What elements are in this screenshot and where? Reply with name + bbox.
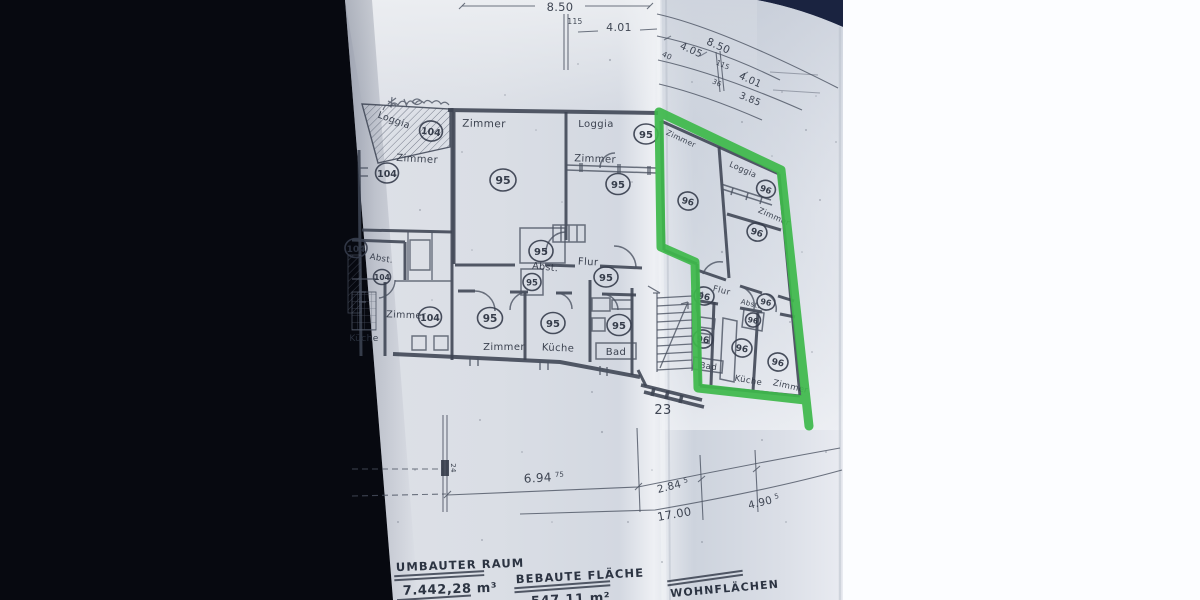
white-sheet-right <box>843 0 1200 600</box>
number-95-zimmer-right: 95 <box>611 180 625 191</box>
photographed-floor-plan: 8.50 115 4.01 40 4.05 8.50 115 36 4.01 3… <box>0 0 1200 600</box>
paper-fold-face <box>660 0 843 430</box>
number-95-kueche: 95 <box>546 319 560 330</box>
number-95-bad: 95 <box>612 321 626 332</box>
number-104-zimmer-top: 104 <box>377 169 397 180</box>
room-label-bad-95: Bad <box>606 347 627 358</box>
dim-694-bottom: 6.94 <box>523 470 552 485</box>
dim-401-top: 4.01 <box>606 21 632 34</box>
room-label-kueche-95: Küche <box>542 342 575 354</box>
number-95-loggia: 95 <box>639 130 653 141</box>
dim-115-tick: 115 <box>567 17 582 26</box>
number-95-abst: 95 <box>534 247 548 258</box>
room-label-flur-95: Flur <box>578 256 600 268</box>
room-label-loggia-95: Loggia <box>578 119 614 130</box>
room-label-kueche-104: Küche <box>349 334 378 344</box>
number-95-closet: 95 <box>526 279 538 289</box>
number-95-zimmer-bottom: 95 <box>483 313 498 325</box>
room-label-zimmer-95-bottom: Zimmer <box>483 342 525 353</box>
room-label-zimmer-95-big: Zimmer <box>462 118 506 131</box>
number-104-zimmer-bottom: 104 <box>420 313 440 324</box>
number-104-small: 104 <box>374 273 390 282</box>
room-label-zimmer-104-top: Zimmer <box>396 153 439 166</box>
floor-plan-scene: 8.50 115 4.01 40 4.05 8.50 115 36 4.01 3… <box>0 0 1200 600</box>
number-104-abst: 104 <box>347 245 366 255</box>
room-label-zimmer-95-right: Zimmer <box>574 153 617 165</box>
dim-24-tick: 24 <box>449 463 457 473</box>
neighbor-balcony-hatch <box>348 255 361 313</box>
dim-tick-block <box>441 460 449 476</box>
number-95-flur: 95 <box>599 273 613 284</box>
dim-694-sup: 75 <box>555 471 564 479</box>
house-number-23: 23 <box>654 403 671 418</box>
dim-850-top: 8.50 <box>547 0 574 14</box>
number-95-zimmer-big: 95 <box>495 174 510 187</box>
